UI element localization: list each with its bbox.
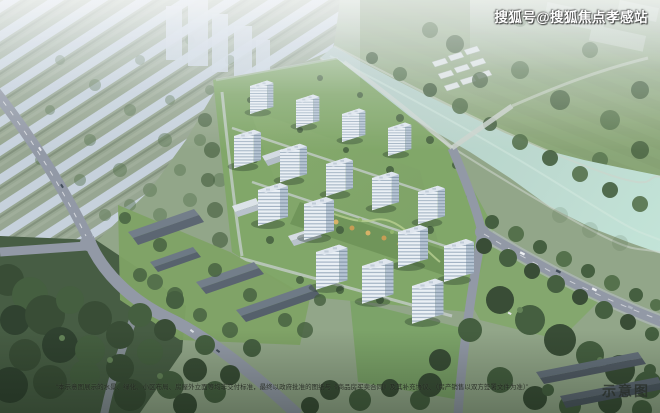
watermark-publisher: 搜狐号@搜狐焦点孝感站 — [494, 6, 648, 26]
watermark-disclaimer: “本示意图展示的水景、绿化、小区布局、房屋外立面等均非交付标准，最终以政府批准的… — [56, 384, 528, 392]
scene — [0, 0, 660, 413]
watermark-image-type: 示意图 — [602, 381, 650, 401]
aerial-render-image: 搜狐号@搜狐焦点孝感站 “本示意图展示的水景、绿化、小区布局、房屋外立面等均非交… — [0, 0, 660, 413]
haze-overlay — [0, 0, 660, 413]
